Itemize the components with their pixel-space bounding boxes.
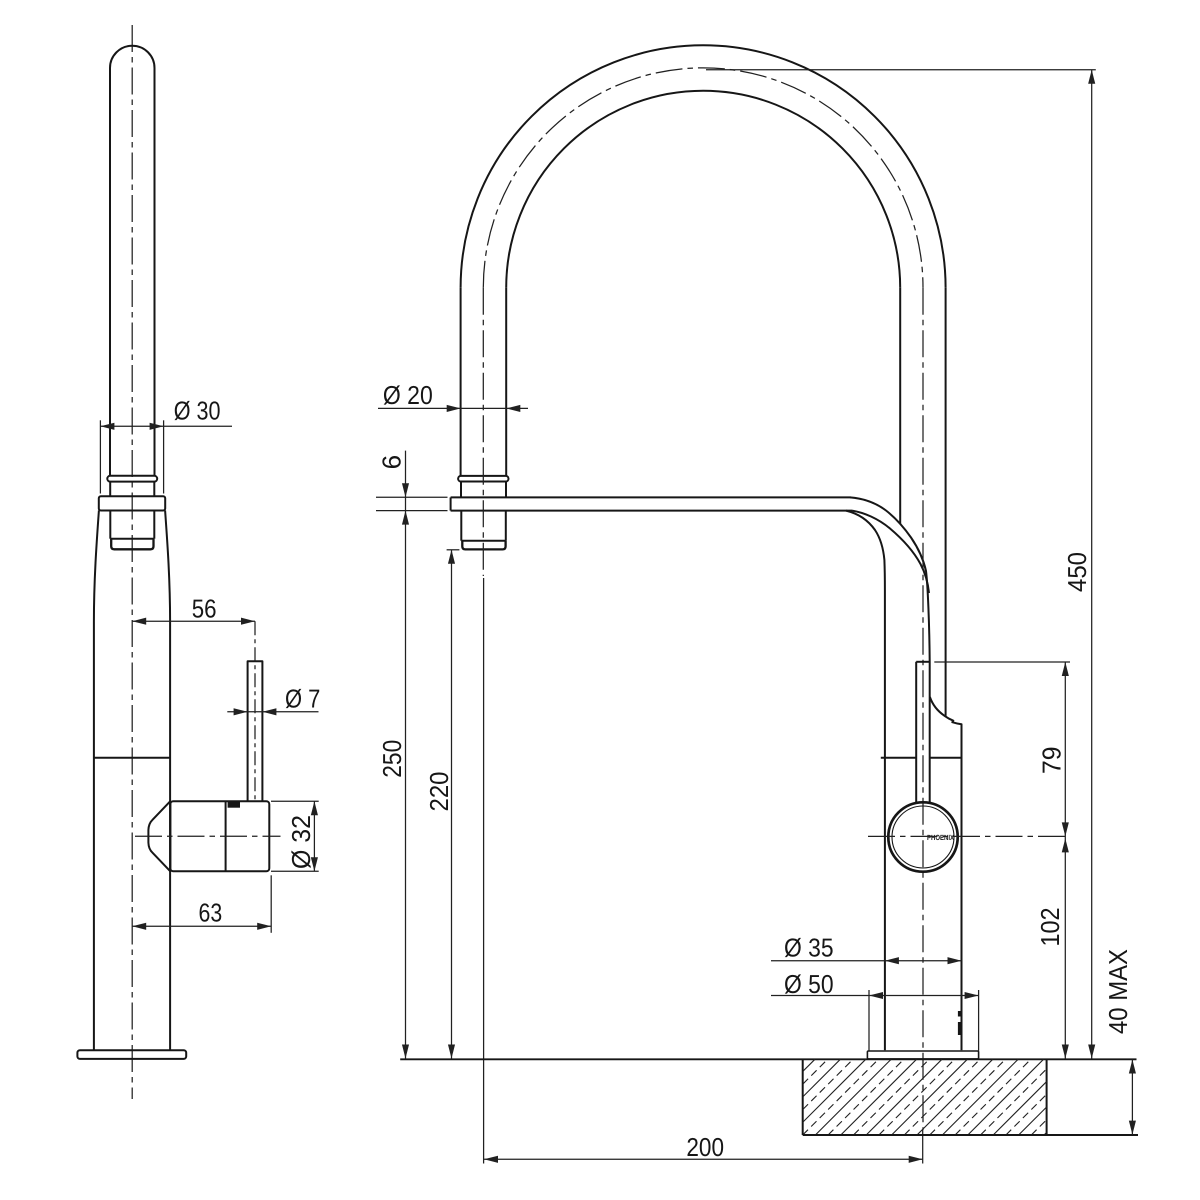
svg-text:Ø 50: Ø 50 [784,969,834,999]
svg-text:Ø 7: Ø 7 [285,684,320,714]
svg-text:450: 450 [1062,552,1092,592]
svg-text:102: 102 [1035,908,1065,947]
svg-text:63: 63 [199,898,223,928]
svg-text:Ø 35: Ø 35 [784,933,834,963]
svg-text:79: 79 [1037,747,1067,775]
svg-text:6: 6 [377,455,407,469]
svg-text:40 MAX: 40 MAX [1103,949,1133,1034]
svg-text:Ø 32: Ø 32 [286,815,316,869]
svg-text:200: 200 [686,1132,724,1162]
svg-text:250: 250 [377,740,407,778]
svg-text:56: 56 [192,594,217,624]
svg-text:PHOENIX: PHOENIX [927,833,954,842]
svg-text:220: 220 [424,772,454,812]
svg-text:Ø 20: Ø 20 [383,380,433,410]
svg-text:Ø 30: Ø 30 [174,396,221,426]
